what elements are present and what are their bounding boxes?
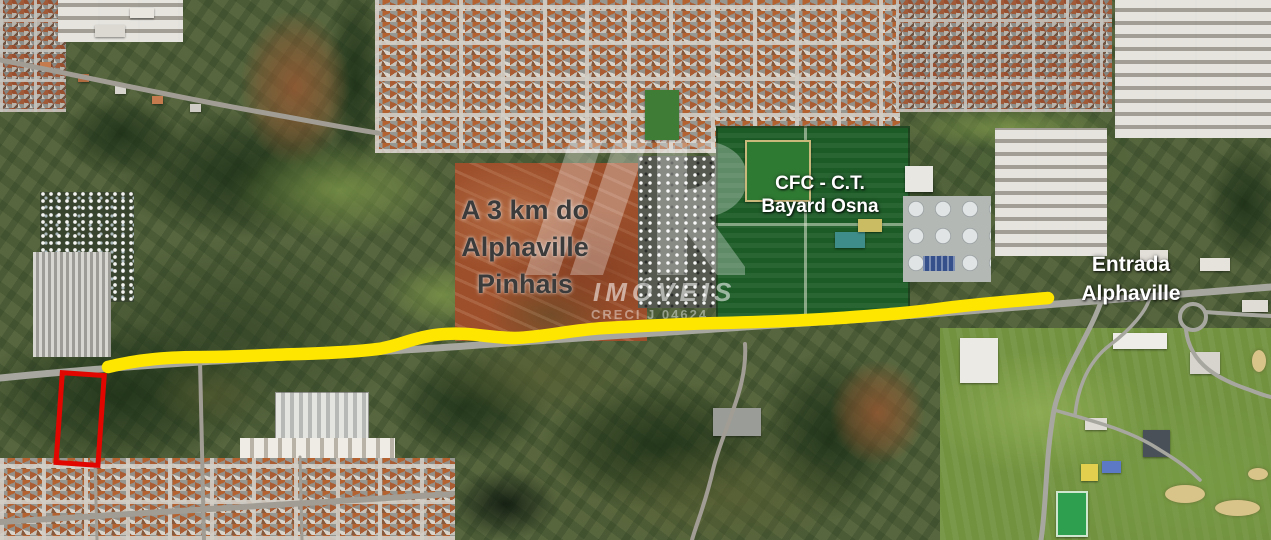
distance-label: A 3 km do Alphaville Pinhais	[437, 192, 613, 303]
route-highlight	[108, 298, 1048, 367]
entrada-label: Entrada Alphaville	[1072, 250, 1190, 308]
distance-label-line2: Alphaville	[437, 229, 613, 266]
entrada-label-line2: Alphaville	[1072, 279, 1190, 308]
cfc-label-line1: CFC - C.T.	[752, 172, 888, 195]
distance-label-line3: Pinhais	[437, 266, 613, 303]
property-marker-rectangle	[53, 370, 107, 468]
entrada-label-line1: Entrada	[1072, 250, 1190, 279]
cfc-label-line2: Bayard Osna	[752, 195, 888, 218]
distance-label-line1: A 3 km do	[437, 192, 613, 229]
satellite-map: IMÓVEIS CRECI J 04624 A 3 km do Alphavil…	[0, 0, 1271, 540]
cfc-label: CFC - C.T. Bayard Osna	[752, 172, 888, 218]
